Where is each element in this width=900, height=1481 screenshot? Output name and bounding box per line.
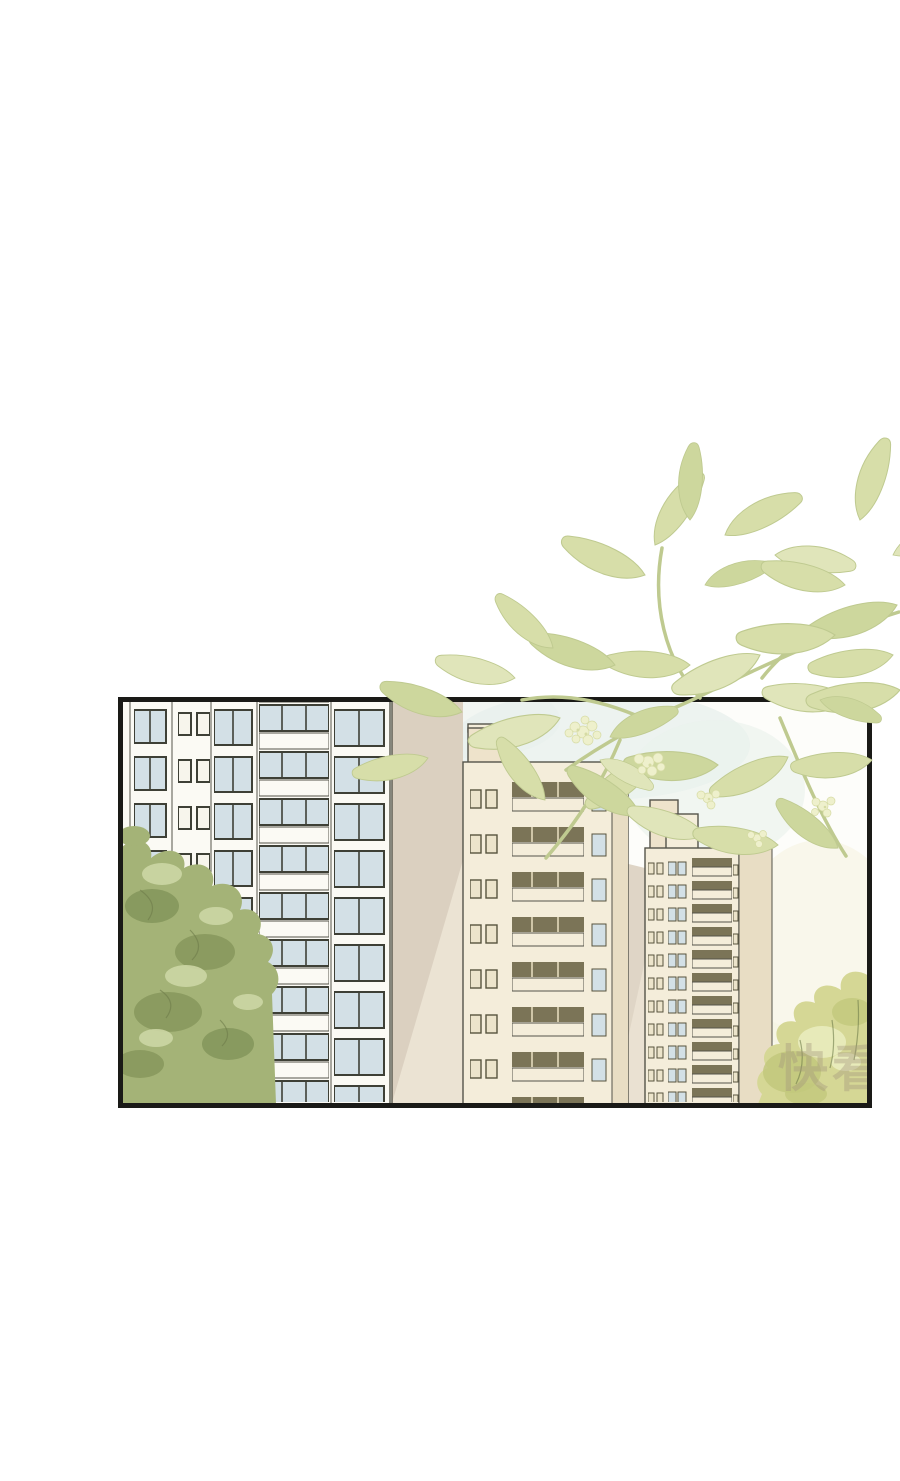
comic-panel-illustration: 快看 — [0, 0, 900, 1481]
window-column — [590, 780, 610, 1104]
window-column — [668, 858, 689, 1102]
balcony-column — [692, 856, 732, 1102]
comic-page: 快看 — [0, 0, 900, 1481]
small-window-column — [470, 780, 504, 1104]
window-column — [733, 860, 741, 1102]
small-window-column — [648, 858, 665, 1102]
